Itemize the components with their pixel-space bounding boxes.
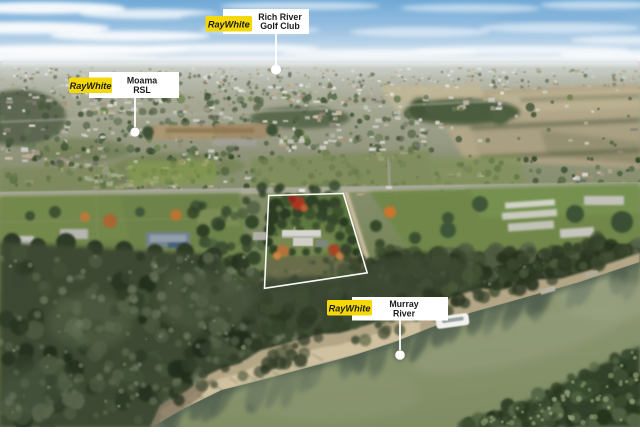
svg-text:River: River — [393, 309, 416, 319]
svg-text:RayWhite: RayWhite — [70, 81, 112, 91]
svg-text:RSL: RSL — [133, 85, 151, 95]
svg-text:Golf Club: Golf Club — [260, 21, 300, 31]
svg-text:RayWhite: RayWhite — [208, 19, 250, 29]
svg-text:RayWhite: RayWhite — [329, 303, 371, 313]
